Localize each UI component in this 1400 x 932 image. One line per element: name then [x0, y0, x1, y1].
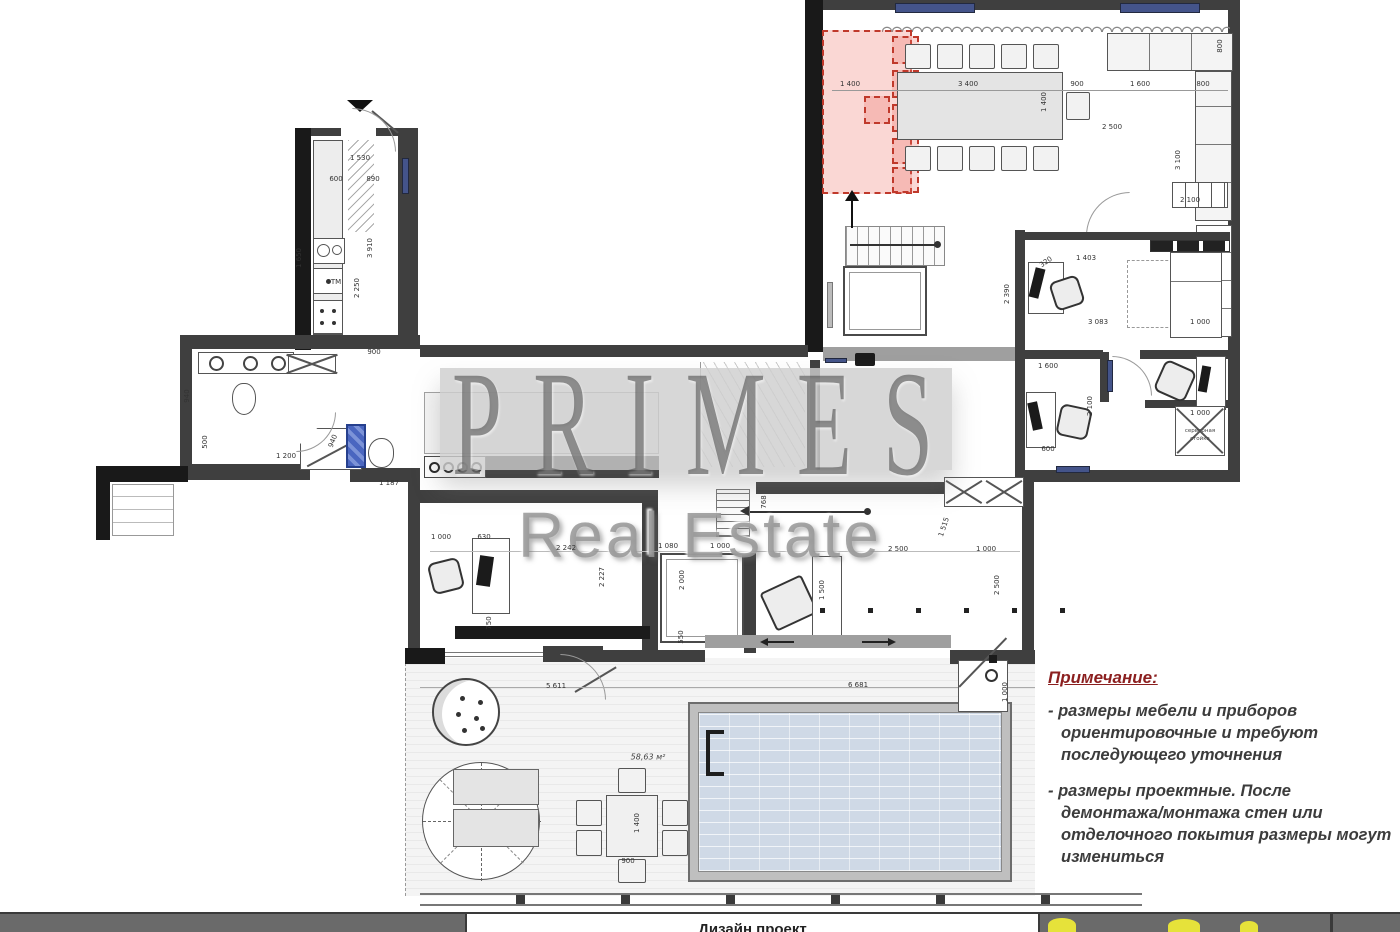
- dining-chair: [937, 146, 963, 171]
- note-line: демонтажа/монтажа стен или: [1048, 802, 1393, 824]
- toilet: [368, 438, 394, 468]
- dining-chair: [1033, 146, 1059, 171]
- wall: [1025, 232, 1230, 240]
- burner-dot: [326, 279, 331, 284]
- dim-label: 1 600: [1130, 80, 1150, 88]
- titlebar-right-block: [1040, 914, 1400, 932]
- cooktop: [313, 268, 343, 294]
- kitchen-sink: [313, 238, 345, 264]
- sink-bowl: [332, 245, 342, 255]
- dim-label: 1 403: [1076, 254, 1096, 262]
- dim-label: 900: [367, 348, 380, 356]
- dining-chair: [1001, 146, 1027, 171]
- dot: [478, 700, 483, 705]
- wall: [805, 0, 823, 352]
- server-rack-label-1: серверная: [1185, 428, 1215, 434]
- outdoor-shower: [958, 660, 1008, 712]
- watermark-primes: PRIMES: [452, 338, 964, 510]
- lounger-cushion: [453, 769, 539, 805]
- dining-chair: [937, 44, 963, 69]
- sink-bowl: [209, 356, 224, 371]
- window-blue: [402, 158, 409, 194]
- pool-ladder: [706, 730, 724, 776]
- note-line: отделочного покытия размеры могут: [1048, 824, 1393, 846]
- dot: [460, 696, 465, 701]
- dining-chair: [1001, 44, 1027, 69]
- dashed-projection: [1127, 260, 1173, 328]
- dim-label: 2 250: [353, 278, 361, 298]
- bench-blue: [1056, 466, 1090, 473]
- door-arc: [1112, 356, 1152, 396]
- dot: [456, 712, 461, 717]
- office-chair: [427, 557, 466, 596]
- toilet: [232, 383, 256, 415]
- appliance-hatch: [348, 140, 374, 232]
- wall: [1015, 350, 1103, 359]
- wall: [96, 482, 110, 540]
- office-chair: [1153, 359, 1198, 404]
- dimension-line: [420, 687, 1035, 688]
- dining-chair: [1066, 92, 1090, 120]
- dining-chair: [969, 146, 995, 171]
- terrace-chair: [576, 800, 602, 826]
- dot: [320, 321, 324, 325]
- note-line: ориентировочные и требуют: [1048, 722, 1393, 744]
- terrace-area-label: 58,63 м²: [631, 753, 666, 762]
- slide-arrow-left-icon: [760, 638, 768, 646]
- dim-label: 500: [201, 435, 209, 448]
- sofa-horizontal: [1107, 33, 1233, 71]
- wall: [180, 464, 310, 480]
- dim-label: 2 500: [1102, 123, 1122, 131]
- note-title: Примечание:: [1048, 668, 1158, 688]
- door-arc: [1086, 192, 1130, 236]
- terrace-chair: [618, 859, 646, 883]
- stair-direction-line: [850, 244, 940, 246]
- entry-steps: [112, 484, 174, 536]
- logo-fragment-yellow: [1168, 919, 1200, 932]
- dot: [474, 716, 479, 721]
- door-leaf: [827, 282, 833, 328]
- dot: [320, 309, 324, 313]
- terrace-railing: [420, 893, 1142, 906]
- note-line: - размеры мебели и приборов: [1048, 700, 1393, 722]
- dimension-line: [832, 90, 1228, 91]
- window-sill: [895, 3, 975, 13]
- bed-line: [1171, 281, 1221, 282]
- pool-water: [698, 712, 1002, 872]
- wall: [311, 128, 341, 136]
- wall: [1015, 470, 1240, 482]
- titlebar-center-block: Дизайн проект: [465, 914, 1040, 932]
- titlebar-divider: [1330, 914, 1333, 932]
- lounger-cushion: [453, 809, 539, 847]
- floorplan-page: { "watermark": { "primes": "PRIMES", "re…: [0, 0, 1400, 930]
- dot: [462, 728, 467, 733]
- dot: [332, 321, 336, 325]
- note-line: - размеры проектные. После: [1048, 780, 1393, 802]
- terrace-chair: [618, 768, 646, 793]
- dimension-dots: [820, 608, 1078, 613]
- dim-label: 3 083: [1088, 318, 1108, 326]
- wall: [180, 335, 420, 349]
- washer-box: [288, 354, 336, 374]
- credenza: [455, 626, 650, 639]
- project-title-text: Дизайн проект: [698, 921, 807, 932]
- bed: [1170, 252, 1222, 338]
- stair-start-dot: [934, 241, 941, 248]
- dining-chair: [905, 146, 931, 171]
- wall: [1022, 482, 1034, 662]
- wardrobe: [1172, 182, 1228, 208]
- dim-label: 1 515: [937, 516, 951, 538]
- headboard: [1150, 240, 1230, 252]
- terrace-chair: [662, 830, 688, 856]
- server-rack-label-2: стойка: [1190, 436, 1210, 442]
- dining-chair: [1033, 44, 1059, 69]
- pool: [688, 702, 1012, 882]
- title-bar: Дизайн проект: [0, 912, 1400, 932]
- red-chair: [864, 96, 890, 124]
- wall: [600, 650, 705, 662]
- wall: [405, 648, 445, 664]
- slide-arrow-line: [862, 641, 888, 643]
- shower-line: [958, 637, 1006, 687]
- dim-label: 2 500: [993, 575, 1001, 595]
- terrace-chair: [576, 830, 602, 856]
- wall: [96, 466, 188, 482]
- vanity: [198, 352, 294, 374]
- slide-arrow-line: [768, 641, 794, 643]
- wall: [180, 349, 192, 467]
- hot-tub: [432, 678, 500, 746]
- floor-plan: серверная стойка: [0, 0, 1400, 930]
- wall: [408, 478, 420, 660]
- dim-label: 3 100: [1174, 150, 1182, 170]
- slide-arrow-right-icon: [888, 638, 896, 646]
- dining-chair: [905, 44, 931, 69]
- watermark-real-estate: Real Estate: [518, 498, 882, 572]
- elevator-inner-line: [849, 272, 921, 330]
- kitchen-unit: [313, 300, 343, 334]
- note-line: измениться: [1048, 846, 1393, 868]
- terrace-table: [606, 795, 658, 857]
- up-arrow-shaft: [851, 200, 853, 228]
- round-lounger: [422, 762, 540, 880]
- office-chair: [1055, 403, 1093, 441]
- terrace-chair: [662, 800, 688, 826]
- note-panel: Примечание: - размеры мебели и приборов …: [1048, 668, 1393, 868]
- dining-table: [897, 72, 1063, 140]
- sink-bowl: [243, 356, 258, 371]
- wall: [295, 128, 311, 350]
- sink-bowl: [317, 244, 330, 257]
- dim-label: 1 000: [431, 533, 451, 541]
- dim-label: 2 390: [1003, 284, 1011, 304]
- up-arrow-icon: [845, 190, 859, 201]
- shower-glass-blue: [346, 424, 366, 468]
- logo-fragment-yellow: [1240, 921, 1258, 932]
- titlebar-left-block: [0, 914, 465, 932]
- drain-circle: [985, 669, 998, 682]
- armchair: [759, 574, 818, 632]
- curtain-symbol: [882, 24, 1230, 32]
- dot: [480, 726, 485, 731]
- window-sill: [1120, 3, 1200, 13]
- dim-label: 1 200: [276, 452, 296, 460]
- sink-bowl: [271, 356, 286, 371]
- note-line: последующего уточнения: [1048, 744, 1393, 766]
- shower-head: [989, 655, 997, 663]
- staircase-upper: [845, 226, 945, 266]
- sliding-door: [705, 635, 951, 648]
- dim-label: 3 910: [366, 238, 374, 258]
- burner: [429, 462, 440, 473]
- dot: [332, 309, 336, 313]
- dim-label: 1 600: [1038, 362, 1058, 370]
- dim-label: 900: [1070, 80, 1083, 88]
- elevator-shaft-upper: [843, 266, 927, 336]
- dining-chair: [969, 44, 995, 69]
- window-band: [445, 652, 543, 657]
